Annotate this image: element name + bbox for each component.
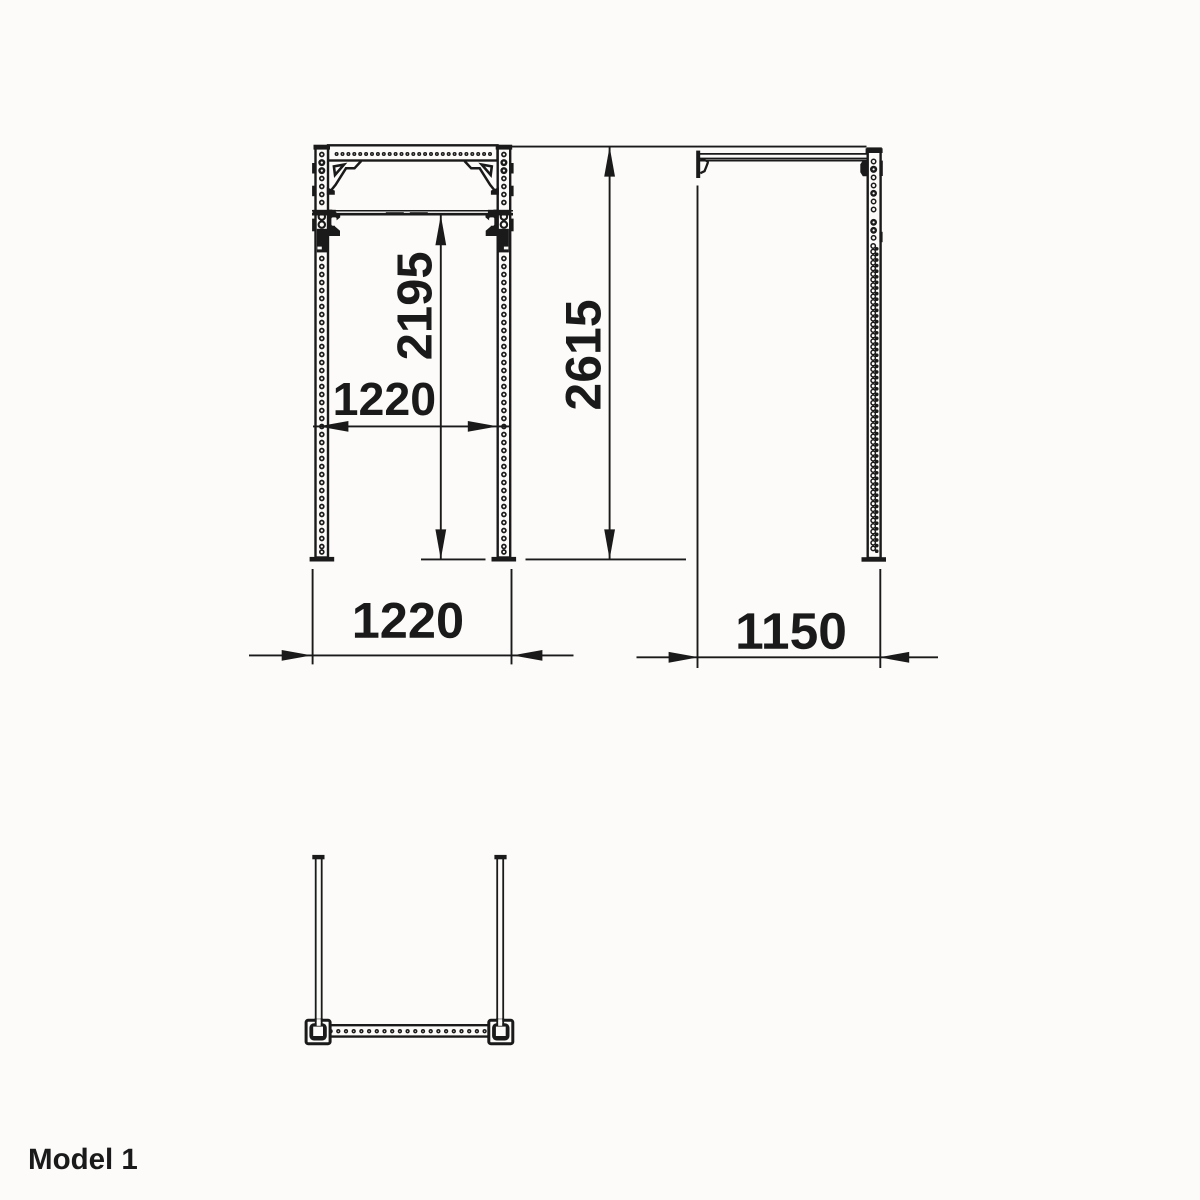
svg-text:1150: 1150 bbox=[735, 602, 847, 660]
svg-text:Model 1: Model 1 bbox=[28, 1143, 138, 1176]
svg-text:2195: 2195 bbox=[389, 251, 443, 360]
svg-text:1220: 1220 bbox=[333, 373, 436, 425]
svg-text:1220: 1220 bbox=[352, 592, 464, 649]
svg-text:2615: 2615 bbox=[555, 299, 611, 410]
